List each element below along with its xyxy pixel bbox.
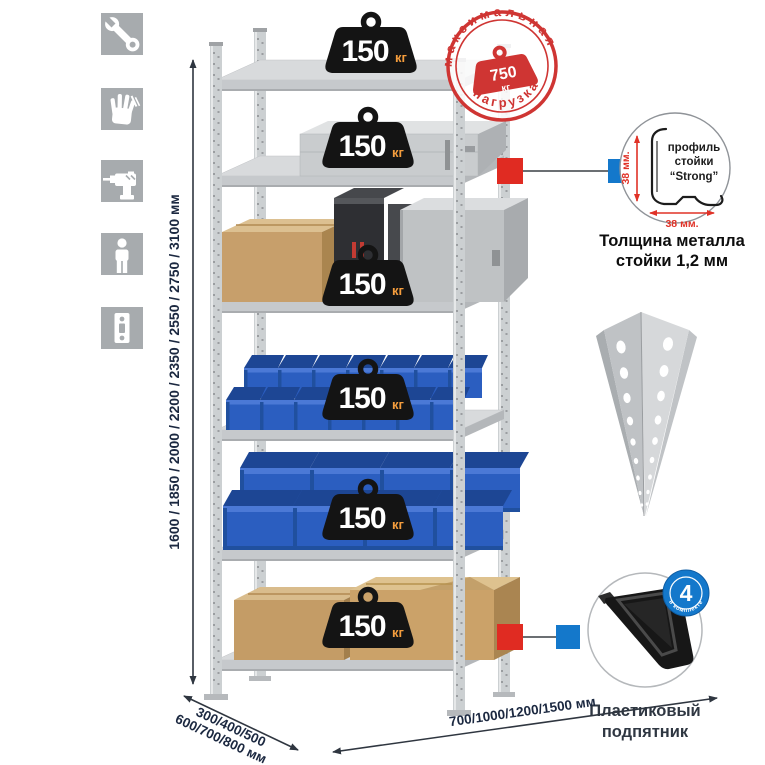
shelf-load-badge-1: 150 кг xyxy=(325,15,416,74)
person-icon xyxy=(101,233,143,275)
badge-unit: кг xyxy=(392,397,405,412)
height-dimension-label: 1600 / 1850 / 2000 / 2200 / 2350 / 2550 … xyxy=(166,194,182,549)
profile-caption-line2: стойки 1,2 мм xyxy=(616,252,728,270)
profile-dim-vertical-label: 38 мм. xyxy=(620,151,632,184)
gloves-icon xyxy=(101,88,143,130)
badge-unit: кг xyxy=(392,145,405,160)
badge-unit: кг xyxy=(395,50,408,65)
max-load-stamp: максимальная нагрузка 750 кг xyxy=(431,0,572,130)
width-dimension-label: 700/1000/1200/1500 мм xyxy=(448,694,596,729)
connector-top xyxy=(497,158,632,184)
quantity-badge: 4 в комплекте xyxy=(663,570,709,616)
icons-column xyxy=(99,11,143,349)
profile-dim-horizontal-label: 38 мм. xyxy=(665,218,698,230)
angle-post-image xyxy=(596,312,697,516)
badge-unit: кг xyxy=(392,625,405,640)
badge-value: 150 xyxy=(341,35,388,68)
profile-callout: 38 мм. 38 мм. профиль стойки “Strong” То… xyxy=(599,113,745,270)
foot-caption-line1: Пластиковый xyxy=(589,702,700,720)
badge-unit: кг xyxy=(392,283,405,298)
wrench-icon xyxy=(99,11,143,55)
badge-value: 150 xyxy=(338,502,385,535)
profile-label-line1: профиль xyxy=(668,142,721,154)
drill-icon xyxy=(101,160,143,202)
height-dimension: 1600 / 1850 / 2000 / 2200 / 2350 / 2550 … xyxy=(166,60,193,684)
foot-caption-line2: подпятник xyxy=(602,723,689,741)
quantity-badge-number: 4 xyxy=(680,580,693,606)
post-profile-icon xyxy=(101,307,143,349)
foot-callout: 4 в комплекте Пластиковый подпятник xyxy=(588,570,709,741)
badge-value: 150 xyxy=(338,382,385,415)
badge-unit: кг xyxy=(392,517,405,532)
connector-top-red-square xyxy=(497,158,523,184)
badge-value: 150 xyxy=(338,610,385,643)
connector-bottom-red-square xyxy=(497,624,523,650)
scene-svg: 1600 / 1850 / 2000 / 2200 / 2350 / 2550 … xyxy=(0,0,765,765)
profile-label-line2: стойки xyxy=(675,156,714,168)
profile-label-line3: “Strong” xyxy=(670,171,719,183)
connector-bottom xyxy=(497,624,580,650)
infographic-canvas: 1600 / 1850 / 2000 / 2200 / 2350 / 2550 … xyxy=(0,0,765,765)
profile-caption-line1: Толщина металла xyxy=(599,232,745,250)
shelf-load-badge-2: 150 кг xyxy=(322,110,413,169)
connector-bottom-blue-square xyxy=(556,625,580,649)
depth-dimension: 300/400/500 600/700/800 мм xyxy=(173,696,298,765)
badge-value: 150 xyxy=(338,130,385,163)
badge-value: 150 xyxy=(338,268,385,301)
